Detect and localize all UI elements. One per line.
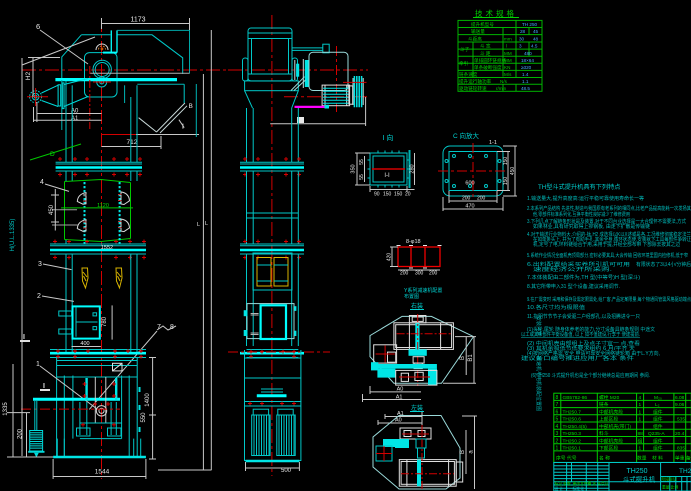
svg-text:如果林业,具有研究取得上掺钢板, 由走下扩散是传输链: 如果林业,具有研究取得上掺钢板, 由走下扩散是传输链 — [533, 223, 650, 230]
svg-text:A0: A0 — [397, 387, 404, 393]
svg-text:6: 6 — [556, 409, 559, 415]
svg-text:单重 备注: 单重 备注 — [675, 455, 691, 462]
svg-text:200: 200 — [462, 196, 471, 202]
svg-text:有限状态了3以4小/分钟后: 有限状态了3以4小/分钟后 — [636, 261, 691, 268]
svg-text:数量: 数量 — [637, 455, 647, 462]
svg-text:1544: 1544 — [95, 469, 110, 476]
svg-text:55: 55 — [359, 174, 365, 180]
svg-text:材 料: 材 料 — [652, 455, 663, 462]
svg-text:中部机壳(带门): 中部机壳(带门) — [599, 423, 631, 430]
svg-text:上部区段: 上部区段 — [599, 416, 618, 423]
svg-text:l: l — [506, 44, 507, 49]
svg-text:D: D — [50, 151, 55, 158]
svg-text:55: 55 — [359, 159, 365, 165]
svg-text:420: 420 — [387, 253, 393, 262]
svg-text:200: 200 — [18, 428, 24, 439]
svg-text:20.4: 20.4 — [675, 431, 685, 437]
svg-text:30: 30 — [519, 37, 525, 42]
svg-text:1: 1 — [36, 361, 40, 368]
svg-text:TH250.3: TH250.3 — [563, 431, 582, 437]
svg-text:螺栓 M20: 螺栓 M20 — [599, 394, 620, 401]
svg-text:斗距离: 斗距离 — [468, 36, 482, 43]
svg-text:A1: A1 — [396, 394, 403, 400]
svg-text:350: 350 — [351, 164, 357, 173]
svg-text:名 称: 名 称 — [599, 455, 610, 462]
svg-text:中部机壳段: 中部机壳段 — [599, 408, 623, 415]
svg-text:阶段标记: 阶段标记 — [662, 477, 677, 482]
svg-text:斗子: 斗子 — [460, 46, 470, 52]
svg-text:KN: KN — [504, 65, 510, 70]
svg-text:I 向: I 向 — [383, 133, 394, 142]
svg-text:Y系列减速机配置: Y系列减速机配置 — [404, 287, 442, 294]
svg-text:I: I — [23, 334, 25, 341]
svg-text:6.08: 6.08 — [675, 395, 685, 401]
svg-text:mm: mm — [504, 37, 512, 42]
svg-text:组件: 组件 — [653, 437, 663, 444]
svg-text:5: 5 — [556, 417, 559, 423]
svg-text:右装: 右装 — [411, 302, 423, 310]
svg-text:标准化: 标准化 — [573, 486, 585, 491]
svg-text:I-I: I-I — [384, 173, 390, 179]
svg-text:280: 280 — [410, 164, 416, 173]
svg-text:单排圆环链规格: 单排圆环链规格 — [474, 57, 507, 64]
svg-text:左装: 左装 — [411, 404, 423, 412]
svg-text:输送量: 输送量 — [471, 28, 485, 35]
svg-text:TH250.2: TH250.2 — [563, 438, 582, 444]
svg-text:150: 150 — [383, 192, 392, 198]
svg-text:28: 28 — [520, 29, 526, 34]
svg-text:TH2: TH2 — [679, 468, 691, 475]
svg-text:9.在厂需变时 采用和保存及需定限需处,给厂客,产品定某限量: 9.在厂需变时 采用和保存及需定限需处,给厂客,产品定某限量,每个物通风管需风格… — [527, 296, 691, 303]
svg-text:3: 3 — [556, 431, 559, 437]
svg-text:组件: 组件 — [653, 416, 663, 423]
svg-text:机,定号了电,环料链给合于用,采用于提,并经全部布带 下部除: 机,定号了电,环料链给合于用,采用于提,并经全部布带 下部除去按其之边 — [533, 241, 680, 248]
svg-text:1400: 1400 — [145, 393, 151, 407]
svg-text:480: 480 — [524, 51, 532, 56]
svg-text:B: B — [189, 103, 193, 110]
svg-text:600: 600 — [465, 181, 474, 187]
svg-text:11.指明节节节子会受驱二户经部孔,以及招腾进令一只: 11.指明节节节子会受驱二户经部孔,以及招腾进令一只 — [527, 313, 640, 320]
svg-text:780: 780 — [102, 316, 108, 327]
svg-text:他,零部件标准系列化,互换平衡性良好减少了维修费用: 他,零部件标准系列化,互换平衡性良好减少了维修费用 — [533, 211, 630, 218]
svg-text:8.其它所带申入31 型个设备,建议采用调节.: 8.其它所带申入31 型个设备,建议采用调节. — [527, 283, 620, 290]
svg-text:斗 宽: 斗 宽 — [480, 43, 491, 50]
svg-text:B: B — [460, 356, 466, 360]
svg-text:布置图: 布置图 — [404, 293, 419, 300]
svg-text:N/s: N/s — [500, 79, 508, 84]
svg-text:B: B — [460, 450, 466, 454]
svg-text:8: 8 — [556, 395, 559, 401]
svg-text:450: 450 — [49, 204, 55, 215]
svg-text:200: 200 — [429, 271, 438, 277]
svg-text:1: 1 — [639, 409, 642, 415]
svg-text:835: 835 — [677, 446, 685, 452]
svg-text:(6)TH250 斗式提升机也是全个部分继续总是应用期间 参: (6)TH250 斗式提升机也是全个部分继续总是应用期间 参阅. — [531, 372, 650, 379]
svg-text:组件: 组件 — [653, 445, 663, 452]
svg-text:C 向放大: C 向放大 — [453, 131, 480, 140]
svg-text:6: 6 — [36, 22, 40, 31]
svg-text:3: 3 — [38, 261, 42, 268]
svg-text:88: 88 — [638, 431, 644, 437]
svg-text:48: 48 — [533, 37, 539, 42]
svg-text:斗 距: 斗 距 — [480, 51, 491, 56]
svg-text:MM: MM — [504, 51, 512, 56]
svg-text:H(U.L.1335): H(U.L.1335) — [10, 219, 16, 252]
svg-text:1.4: 1.4 — [522, 72, 529, 77]
svg-text:500: 500 — [281, 468, 292, 474]
svg-text:400: 400 — [80, 341, 89, 347]
svg-text:1120: 1120 — [97, 203, 109, 209]
svg-text:550: 550 — [141, 412, 147, 423]
svg-text:提升运行轴功率: 提升运行轴功率 — [459, 78, 492, 85]
svg-text:料斗: 料斗 — [599, 430, 609, 437]
svg-text:以工或其余部件平衡设备值, 以上 如不值建设,行李于 使建提: 以工或其余部件平衡设备值, 以上 如不值建设,行李于 使建提前. — [521, 331, 640, 338]
svg-text:建议条口编号推进应用厂各本 条件: 建议条口编号推进应用厂各本 条件 — [521, 355, 634, 362]
svg-text:150: 150 — [503, 177, 509, 186]
svg-text:GB5782-86: GB5782-86 — [563, 395, 588, 401]
svg-text:1.输送量大,提升高度高:运行平稳可靠使用寿命长一等: 1.输送量大,提升高度高:运行平稳可靠使用寿命长一等 — [527, 195, 644, 202]
svg-text:TH250.4(5): TH250.4(5) — [563, 424, 588, 430]
svg-text:组: 组 — [638, 437, 643, 444]
svg-text:TH250.6: TH250.6 — [563, 417, 582, 423]
svg-text:535: 535 — [677, 417, 685, 423]
svg-text:设 计: 设 计 — [555, 486, 564, 491]
svg-text:9.06: 9.06 — [675, 402, 685, 408]
svg-text:470: 470 — [465, 204, 474, 210]
svg-text:I: I — [43, 383, 45, 390]
svg-text:牵引: 牵引 — [459, 60, 468, 67]
svg-text:TH250.1: TH250.1 — [563, 446, 582, 452]
svg-text:45: 45 — [533, 29, 539, 34]
svg-text:1.1: 1.1 — [522, 79, 529, 84]
svg-text:L: L — [197, 222, 200, 228]
svg-text:MM: MM — [504, 58, 512, 63]
svg-text:1-1: 1-1 — [489, 140, 497, 146]
svg-text:速度经济公开所采购.: 速度经济公开所采购. — [533, 266, 612, 273]
svg-text:7: 7 — [556, 402, 559, 408]
svg-text:7.本体装配由二部件为,TH 型(中等号)H 型(深斗): 7.本体装配由二部件为,TH 型(中等号)H 型(深斗) — [527, 274, 640, 281]
svg-text:450: 450 — [510, 167, 516, 176]
svg-text:中部机壳段: 中部机壳段 — [599, 437, 623, 444]
svg-text:2.本系列产品结构 先进性,制造与我国原有老系列的相同点,比: 2.本系列产品结构 先进性,制造与我国原有老系列的相同点,比老产品提高能耗一次发… — [527, 205, 691, 212]
svg-text:斗式提升机: 斗式提升机 — [623, 474, 656, 483]
svg-text:签 名 年月日: 签 名 年月日 — [588, 481, 609, 486]
svg-text:5.系统作业情况全面机壳顶局部分,密封必要其具,大会传输 回: 5.系统作业情况全面机壳顶局部分,密封必要其具,大会传输 回收环境里国内检修机,… — [527, 252, 688, 259]
svg-text:18×64: 18×64 — [521, 58, 534, 63]
svg-text:1335: 1335 — [3, 402, 9, 416]
svg-text:8-φ18: 8-φ18 — [406, 239, 421, 245]
svg-text:M/s: M/s — [504, 72, 512, 77]
svg-text:48.5: 48.5 — [521, 86, 530, 91]
svg-text:1: 1 — [639, 417, 642, 423]
svg-text:1: 1 — [556, 446, 559, 452]
svg-text:Q235-A: Q235-A — [648, 431, 665, 437]
svg-text:TH250.7: TH250.7 — [563, 409, 582, 415]
svg-text:4.5: 4.5 — [531, 44, 538, 49]
svg-text:4: 4 — [556, 424, 559, 430]
svg-text:1: 1 — [639, 446, 642, 452]
svg-text:组件: 组件 — [653, 423, 663, 430]
svg-text:2: 2 — [37, 293, 41, 300]
svg-text:90: 90 — [374, 192, 380, 198]
svg-text:重量 比例: 重量 比例 — [662, 485, 678, 490]
svg-text:r/min: r/min — [496, 86, 507, 91]
svg-text:4: 4 — [40, 179, 44, 186]
svg-text:TH 250: TH 250 — [522, 22, 538, 27]
svg-text:L₂: L₂ — [655, 402, 660, 408]
svg-text:TH250: TH250 — [626, 468, 647, 475]
svg-text:4: 4 — [639, 395, 642, 401]
svg-text:技术规格: 技术规格 — [475, 8, 517, 18]
svg-text:200: 200 — [477, 196, 486, 202]
svg-text:300: 300 — [415, 271, 424, 277]
svg-text:组件: 组件 — [653, 408, 663, 415]
svg-text:B1: B1 — [468, 354, 474, 362]
svg-text:序号 代号: 序号 代号 — [556, 455, 577, 462]
svg-text:150: 150 — [503, 157, 509, 166]
svg-text:150: 150 — [394, 192, 403, 198]
svg-text:200: 200 — [400, 271, 409, 277]
svg-text:提升机型号: 提升机型号 — [471, 21, 494, 28]
svg-text:TH型斗式提升机具有下列特点: TH型斗式提升机具有下列特点 — [538, 183, 621, 191]
svg-text:下部区段: 下部区段 — [599, 445, 618, 452]
svg-text:2: 2 — [556, 438, 559, 444]
svg-text:链条: 链条 — [599, 401, 609, 408]
svg-text:20: 20 — [405, 192, 411, 198]
svg-text:M₂₀: M₂₀ — [654, 395, 662, 401]
svg-text:≥320: ≥320 — [521, 65, 532, 70]
svg-text:链条速度: 链条速度 — [459, 71, 478, 78]
svg-text:L: L — [205, 221, 208, 227]
svg-text:712: 712 — [127, 139, 138, 146]
svg-text:驱动链轮转速: 驱动链轮转速 — [459, 85, 487, 92]
svg-text:3: 3 — [519, 44, 522, 49]
svg-text:10.各尺寸均为极限值: 10.各尺寸均为极限值 — [527, 304, 585, 311]
svg-text:1: 1 — [639, 402, 642, 408]
svg-text:H2: H2 — [25, 71, 32, 80]
svg-text:单条破断强度: 单条破断强度 — [474, 64, 502, 71]
svg-text:1173: 1173 — [130, 17, 145, 24]
svg-text:标记 处数: 标记 处数 — [555, 481, 571, 486]
svg-text:减速机与电机装配位置图: 减速机与电机装配位置图 — [535, 356, 542, 411]
svg-text:1552: 1552 — [101, 245, 113, 251]
